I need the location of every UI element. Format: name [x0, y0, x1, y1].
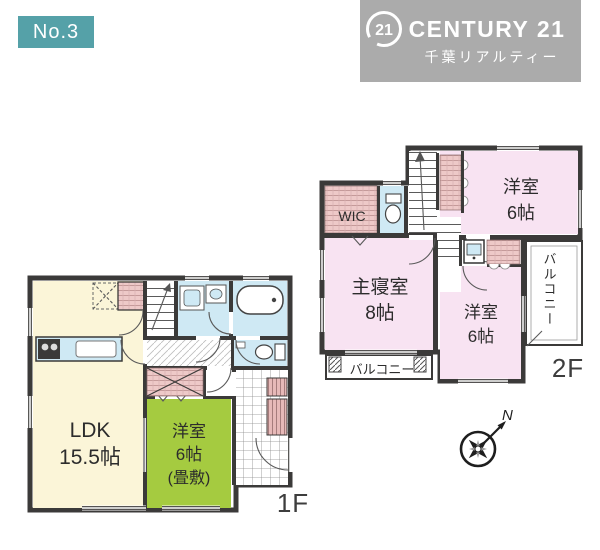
balcony-south-label: バルコニー: [350, 362, 415, 377]
shoe-cabinet: [267, 378, 287, 435]
tatami-size: 6帖: [176, 445, 202, 464]
compass-north-label: N: [502, 407, 513, 424]
bedroom-se-name: 洋室: [464, 303, 498, 322]
floor-plan-2f: バルコニー バルコニー WIC 洋室 6帖: [320, 146, 585, 384]
tatami-name: 洋室: [172, 422, 206, 441]
ldk-room: [33, 281, 144, 508]
washer-icon: [180, 286, 204, 310]
sink-icon: [76, 341, 116, 357]
wic-label: WIC: [338, 208, 365, 224]
bathtub-icon: [237, 286, 283, 314]
toilet-icon-2f: [386, 194, 402, 223]
vanity-icon: [206, 285, 226, 303]
balcony-east-label: バルコニー: [542, 252, 557, 327]
bedroom-ne-name: 洋室: [503, 177, 539, 197]
floor-plan-svg: バルコニー バルコニー WIC 洋室 6帖: [0, 0, 600, 550]
stairs-1f: [147, 281, 174, 336]
closet-oshiire: [147, 368, 203, 396]
bedroom-se-size: 6帖: [468, 327, 494, 346]
hallway-1f: [147, 340, 231, 366]
balcony-east: バルコニー: [526, 241, 582, 346]
floorplan-flyer: No.3 21 CENTURY 21 千葉リアルティー: [0, 0, 600, 550]
master-size: 8帖: [365, 302, 395, 324]
ldk-name: LDK: [70, 419, 111, 442]
sliding-door-ldk: [143, 418, 147, 472]
floor-1f-label: 1F: [277, 488, 309, 518]
floor-2f-label: 2F: [552, 353, 584, 383]
master-name: 主寝室: [351, 276, 408, 298]
tatami-note: (畳敷): [168, 468, 211, 487]
bedroom-ne-size: 6帖: [507, 203, 535, 223]
washbasin-2f-icon: [464, 240, 484, 263]
floor-plan-1f: LDK 15.5帖 洋室 6帖 (畳敷) 1F: [28, 276, 310, 519]
compass-icon: N: [460, 407, 513, 467]
balcony-south: バルコニー: [326, 355, 432, 379]
ldk-size: 15.5帖: [59, 446, 121, 469]
kitchen-counter: [36, 337, 122, 361]
